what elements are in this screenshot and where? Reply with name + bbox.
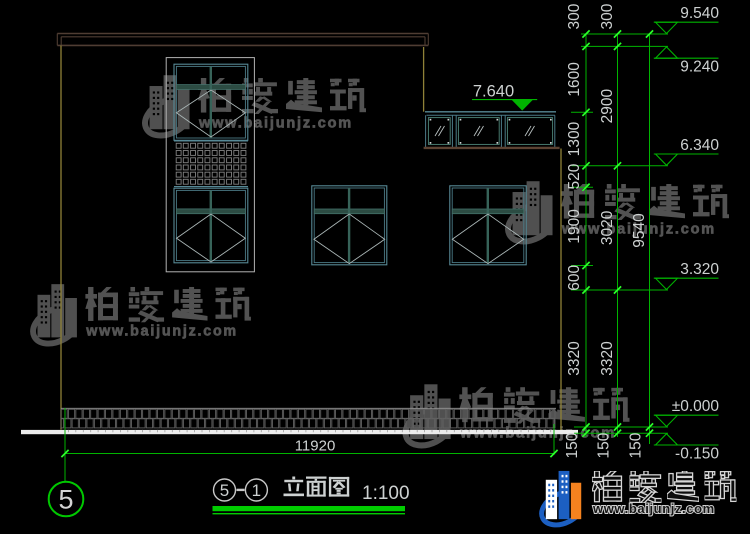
svg-text:150: 150: [564, 432, 581, 458]
svg-text:600: 600: [566, 264, 583, 290]
svg-text:1300: 1300: [566, 121, 583, 156]
svg-text:2900: 2900: [599, 88, 616, 123]
svg-text:150: 150: [628, 432, 645, 458]
svg-text:300: 300: [599, 3, 616, 29]
svg-text:1900: 1900: [566, 209, 583, 244]
svg-text:5: 5: [220, 481, 229, 500]
svg-text:1: 1: [252, 481, 261, 500]
svg-text:3020: 3020: [599, 210, 616, 245]
svg-text:www.baijunjz.com: www.baijunjz.com: [592, 501, 715, 516]
svg-text:-0.150: -0.150: [675, 446, 719, 463]
svg-text:150: 150: [596, 432, 613, 458]
svg-text:1600: 1600: [566, 62, 583, 97]
svg-text:3320: 3320: [599, 341, 616, 376]
svg-text:520: 520: [566, 163, 583, 189]
svg-text:9.240: 9.240: [680, 59, 719, 76]
svg-text:5: 5: [58, 485, 73, 515]
svg-text:3320: 3320: [566, 341, 583, 376]
svg-text:6.340: 6.340: [680, 137, 719, 154]
svg-text:11920: 11920: [295, 438, 336, 455]
svg-text:9.540: 9.540: [680, 5, 719, 22]
svg-text:9540: 9540: [631, 213, 648, 248]
svg-text:300: 300: [566, 3, 583, 29]
svg-text:1:100: 1:100: [362, 483, 410, 504]
svg-text:3.320: 3.320: [680, 261, 719, 278]
svg-text:7.640: 7.640: [473, 83, 514, 101]
svg-text:±0.000: ±0.000: [672, 398, 720, 415]
